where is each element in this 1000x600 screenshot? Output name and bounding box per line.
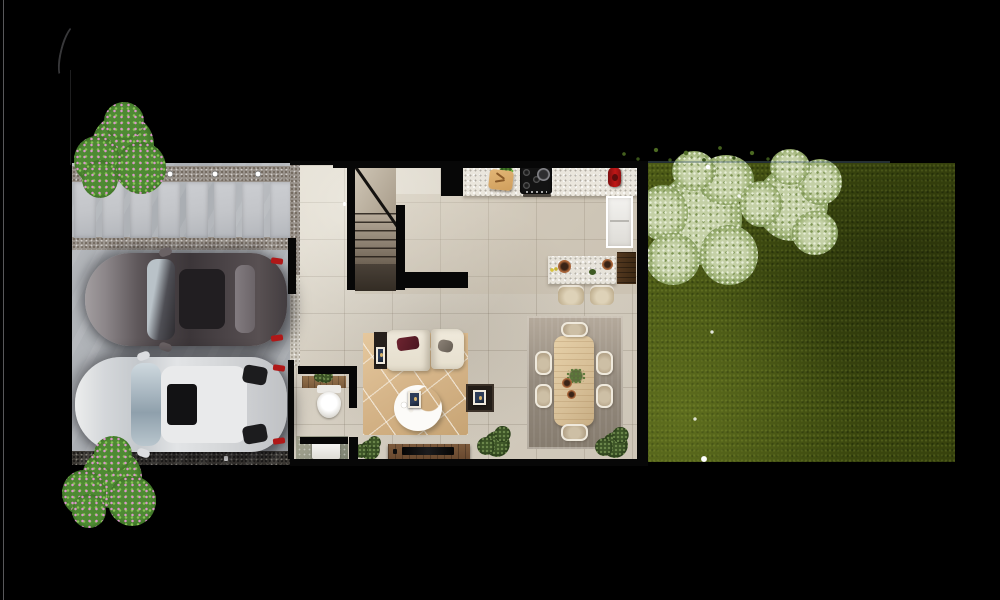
- wall-powder-right: [349, 366, 357, 408]
- flowering-bush-top: [74, 104, 166, 196]
- wall-laundry-top: [300, 437, 348, 444]
- pavement-marker-dot: [224, 456, 228, 461]
- scattered-foliage: [612, 136, 782, 164]
- garden-marker-dots: [648, 163, 955, 462]
- console-speaker: [393, 449, 397, 454]
- wall-laundry-right: [349, 437, 358, 459]
- hob-knobs: [525, 191, 547, 193]
- dining-chair-right-2: [596, 384, 613, 408]
- fruit-bowl-left: [558, 260, 571, 273]
- car-dark-glass-roof: [179, 269, 225, 329]
- window-bench: [617, 252, 636, 284]
- dining-chair-top: [561, 322, 588, 337]
- stair-landing-lower: [355, 264, 396, 291]
- left-edge-line: [3, 0, 4, 600]
- centerpiece-bowl-a: [562, 378, 572, 388]
- plant-right-of-dining: [602, 432, 628, 458]
- gas-hob: [520, 166, 552, 194]
- foliage-lobe: [94, 436, 132, 472]
- door-handle-dot: [343, 202, 346, 206]
- tv-screen: [402, 447, 454, 455]
- wall-under-stairs: [404, 272, 468, 288]
- counter-vent: [523, 194, 551, 197]
- dining-chair-right-1: [596, 351, 613, 375]
- stair-treads: [355, 213, 396, 265]
- car-dark-taillight-left: [271, 257, 284, 265]
- curb-arc: [53, 23, 84, 82]
- bar-stool-right: [590, 285, 614, 305]
- wall-powder-top: [298, 366, 355, 374]
- car-dark: [85, 253, 287, 346]
- wall-right: [637, 161, 648, 466]
- dining-chair-left-1: [535, 351, 552, 375]
- bar-stool-left: [558, 285, 584, 305]
- plant-left-of-dining: [484, 431, 510, 457]
- car-dark-side-mirror-left: [158, 246, 173, 258]
- car-dark-windshield: [147, 259, 175, 340]
- wall-bottom: [290, 459, 648, 466]
- foliage-lobe: [104, 102, 144, 140]
- lemons: [550, 267, 559, 273]
- centerpiece-bowl-b: [567, 390, 576, 399]
- paver-slab: [270, 182, 292, 238]
- foliage-lobe: [72, 494, 106, 528]
- wall-top-main: [333, 161, 648, 168]
- framed-art-on-table: [408, 391, 421, 408]
- paver-slab: [242, 182, 264, 238]
- dining-chair-bottom: [561, 424, 588, 441]
- car-white-windshield: [131, 363, 161, 446]
- picture-frame: [376, 347, 385, 364]
- wall-kitchen-cabinet: [441, 163, 463, 196]
- car-white-taillight-left: [273, 364, 286, 372]
- car-white-sunroof: [167, 384, 197, 425]
- wall-left-lower: [288, 360, 294, 459]
- avocado: [589, 269, 596, 275]
- foliage-lobe: [108, 476, 156, 526]
- car-white-rear-window-right: [242, 423, 269, 445]
- backyard: [648, 163, 955, 462]
- render-canvas: [0, 0, 1000, 600]
- house-floorplan: [290, 161, 648, 466]
- wall-stair-left: [347, 163, 355, 290]
- cooking-pot: [537, 168, 550, 181]
- car-white-taillight-right: [273, 437, 286, 445]
- car-dark-rear-window: [235, 265, 255, 333]
- cutting-board: [488, 169, 514, 191]
- property-boundary-line: [70, 70, 71, 165]
- car-white-rear-window-left: [242, 364, 269, 386]
- foliage-lobe: [82, 160, 118, 198]
- picture-frame-right: [473, 390, 486, 405]
- fruit-bowl-right: [602, 259, 613, 270]
- driveway: [72, 163, 290, 465]
- foliage-lobe: [116, 142, 166, 194]
- car-dark-side-mirror-right: [158, 341, 173, 353]
- car-dark-taillight-right: [271, 334, 284, 342]
- paver-slab: [214, 182, 236, 238]
- car-white-side-mirror-left: [136, 350, 151, 362]
- sink-cabinet: [606, 196, 633, 248]
- red-kettle: [608, 167, 621, 187]
- wall-left-upper: [288, 238, 296, 294]
- dining-chair-left-2: [535, 384, 552, 408]
- paver-slab: [186, 182, 208, 238]
- plant-by-console: [360, 440, 380, 460]
- flowering-bush-bottom: [62, 436, 158, 528]
